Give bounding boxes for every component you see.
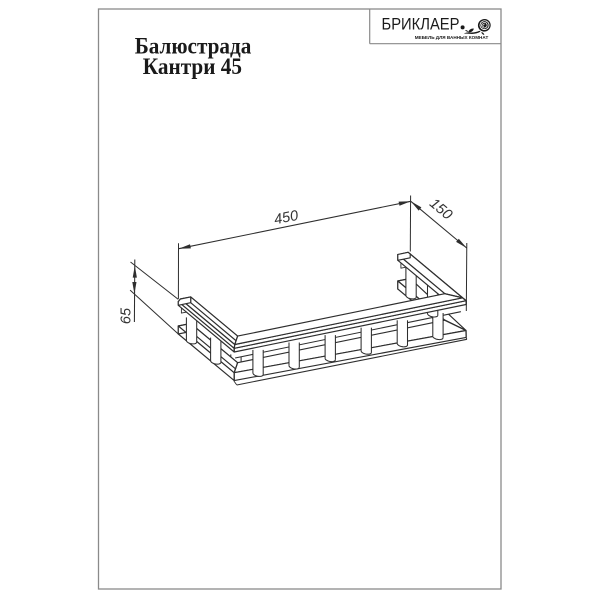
svg-text:БРИКЛАЕР: БРИКЛАЕР xyxy=(382,14,460,33)
svg-text:МЕБЕЛЬ ДЛЯ ВАННЫХ КОМНАТ: МЕБЕЛЬ ДЛЯ ВАННЫХ КОМНАТ xyxy=(415,35,489,41)
svg-text:65: 65 xyxy=(119,307,135,324)
svg-text:Кантри 45: Кантри 45 xyxy=(143,54,242,79)
